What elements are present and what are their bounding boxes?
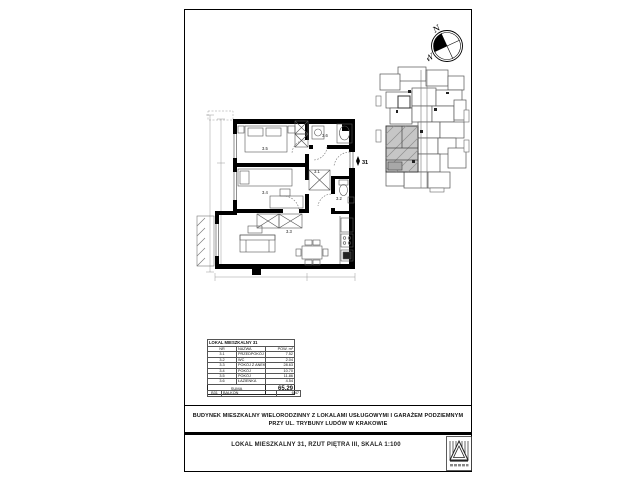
unit-number-label: 31	[362, 160, 368, 166]
cell-nazwa: PRZEDPOKÓJ	[237, 352, 266, 357]
area-table: LOKAL MIESZKALNY 31 NR NAZWA POW. m² 3.1…	[207, 339, 295, 395]
developer-logo	[446, 436, 472, 471]
project-title-line1: BUDYNEK MIESZKALNY WIELORODZINNY Z LOKAL…	[186, 413, 470, 419]
toilet	[339, 180, 348, 196]
walls	[215, 119, 355, 275]
cell-nazwa: BALKON	[222, 391, 277, 397]
title-block-divider-thick	[184, 432, 472, 435]
drawing-sheet: N W	[0, 0, 640, 480]
title-block-divider-thin	[184, 405, 472, 406]
windows	[216, 134, 353, 256]
room-label-3-3: 3.3	[286, 229, 292, 234]
area-table-title: LOKAL MIESZKALNY 31	[208, 340, 295, 347]
room-label-3-5: 3.5	[262, 146, 268, 151]
compass-west-label: W	[427, 51, 436, 63]
cell-pow: 6.47	[277, 391, 301, 397]
furniture	[238, 121, 354, 265]
room-label-3-4: 3.4	[262, 190, 268, 195]
logo-baseline	[450, 460, 468, 462]
table-row: B31 BALKON 6.47	[208, 391, 301, 397]
sofa	[240, 235, 275, 252]
single-bed	[238, 169, 292, 186]
room-label-3-6: 3.6	[322, 133, 328, 138]
cell-nr: B31	[208, 391, 222, 397]
dining-table	[296, 240, 328, 265]
cell-nazwa: POKÓJ Z ANEKSEM KUCH.	[237, 363, 266, 368]
key-plan	[374, 64, 470, 196]
coffee-table	[248, 226, 262, 233]
project-title-line2: PRZY UL. TRYBUNY LUDÓW W KRAKOWIE	[186, 421, 470, 427]
balcony-table: B31 BALKON 6.47	[207, 390, 301, 397]
floor-plan: 3.5 3.4 3.3 3.1 3.6 3.2 31	[190, 105, 380, 320]
room-label-3-2: 3.2	[336, 196, 342, 201]
balcony	[197, 216, 214, 266]
unit-entrance-marker: 31	[356, 156, 368, 166]
drawing-title: LOKAL MIESZKALNY 31, RZUT PIĘTRA III, SK…	[186, 442, 446, 448]
compass-north-sector	[434, 34, 447, 52]
area-table-header-row: NR NAZWA POW. m²	[208, 347, 295, 352]
key-plan-highlighted-unit	[386, 126, 418, 172]
room-label-3-1: 3.1	[314, 169, 320, 174]
wardrobe	[257, 214, 302, 228]
